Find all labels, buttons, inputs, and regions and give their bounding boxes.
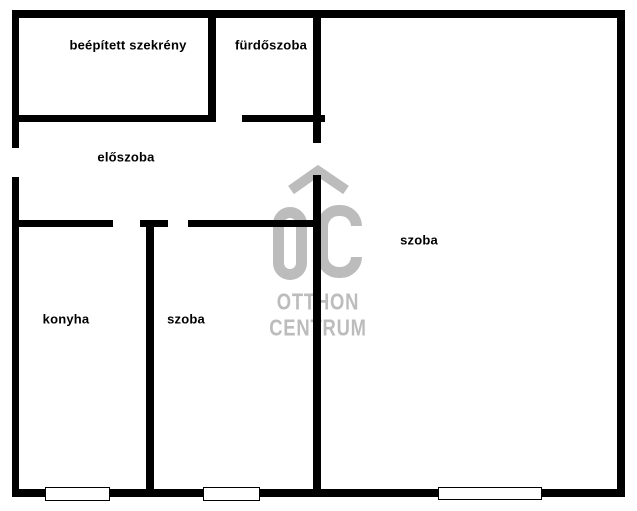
hallway-bottom-wall-left <box>19 220 113 227</box>
room-label-room-small: szoba <box>167 312 205 327</box>
outer-wall-right <box>617 10 625 497</box>
watermark-letter-c <box>323 211 357 273</box>
small-room-window <box>203 487 260 501</box>
watermark-letter-c-gap <box>348 226 366 257</box>
large-room-window <box>438 487 542 500</box>
kitchen-room-divider <box>146 227 154 489</box>
outer-wall-left-lower <box>12 177 19 497</box>
room-label-room-large: szoba <box>400 233 438 248</box>
room-label-kitchen: konyha <box>43 312 90 327</box>
center-wall-upper <box>313 10 321 143</box>
room-label-bathroom: fürdőszoba <box>235 38 307 53</box>
outer-wall-left-upper <box>12 10 19 148</box>
hallway-bottom-wall-right <box>188 220 320 227</box>
closet-bottom-wall <box>19 115 215 122</box>
floor-plan: OTTHON CENTRUM beépített szekrényfürdősz… <box>0 0 637 511</box>
closet-bathroom-divider <box>208 18 216 122</box>
kitchen-window <box>45 487 110 501</box>
room-label-hallway: előszoba <box>97 150 154 165</box>
room-label-built-in-closet: beépített szekrény <box>69 38 186 53</box>
hallway-bottom-wall-mid <box>140 220 168 227</box>
